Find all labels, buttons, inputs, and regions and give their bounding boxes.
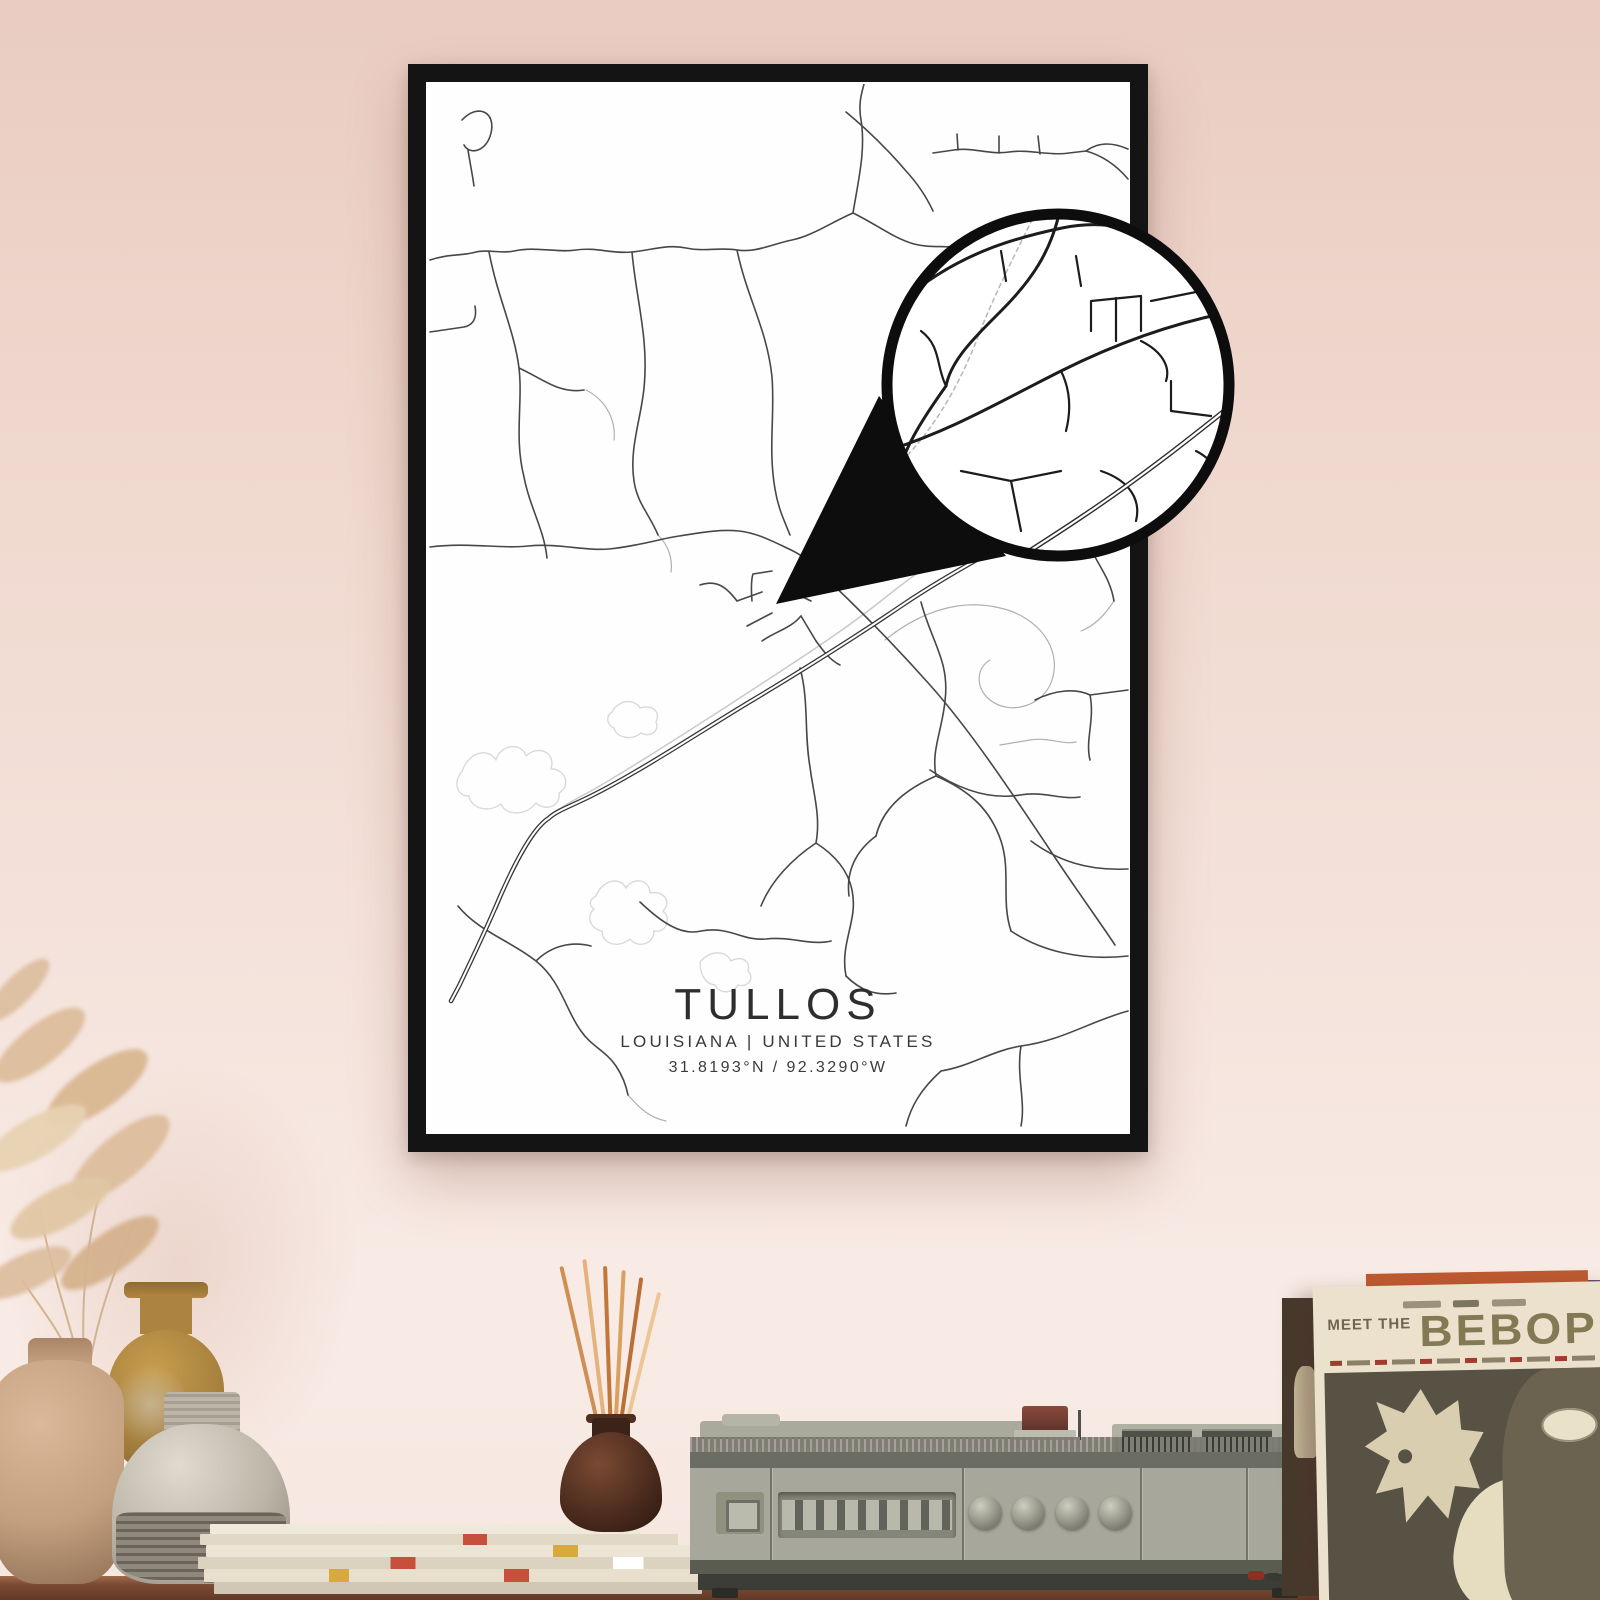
magazine	[204, 1569, 704, 1582]
magazine	[206, 1545, 702, 1557]
cable-plug	[1266, 1573, 1280, 1581]
player-base	[698, 1574, 1314, 1590]
poster-paper	[426, 82, 1130, 1134]
sleeve-character-dark	[1500, 1367, 1600, 1600]
sleeve-title: MEET THE BEBOP	[1327, 1307, 1598, 1353]
cable-plug	[1248, 1571, 1264, 1580]
poster-coordinates: 31.8193°N / 92.3290°W	[426, 1059, 1130, 1077]
player-top-strip	[690, 1452, 1322, 1468]
magazine	[210, 1524, 640, 1534]
tuning-knob	[1056, 1496, 1089, 1529]
tone-knob	[1012, 1496, 1045, 1529]
magazine	[198, 1557, 704, 1569]
sleeve-subtitle-fineprint	[1330, 1355, 1600, 1366]
preset-buttons	[782, 1500, 952, 1530]
poster-subtitle: LOUISIANA | UNITED STATES	[426, 1032, 1130, 1052]
panel-groove	[1140, 1468, 1142, 1560]
sleeve-artwork	[1324, 1367, 1600, 1600]
panel-groove	[770, 1468, 772, 1560]
record-sleeve: MEET THE BEBOP	[1313, 1281, 1600, 1600]
volume-knob	[969, 1496, 1002, 1529]
power-button-cap	[726, 1500, 760, 1532]
mustard-vase-neck	[140, 1294, 192, 1334]
tonearm-pin	[1078, 1410, 1081, 1440]
player-bottom-strip	[690, 1560, 1322, 1574]
player-lid-handle	[722, 1414, 780, 1426]
sleeve-meet-the: MEET THE	[1327, 1317, 1411, 1332]
room-scene: TULLOS LOUISIANA | UNITED STATES 31.8193…	[0, 0, 1600, 1600]
sleeve-album-title: BEBOP	[1419, 1308, 1598, 1350]
magazine	[214, 1582, 702, 1594]
selector-knob	[1099, 1496, 1132, 1529]
poster-title: TULLOS	[426, 980, 1130, 1030]
magazine	[200, 1534, 678, 1545]
panel-groove	[1246, 1468, 1248, 1560]
diffuser-bottle	[560, 1432, 662, 1532]
tan-vase	[0, 1360, 124, 1584]
panel-groove	[962, 1468, 964, 1560]
player-foot	[712, 1588, 738, 1598]
